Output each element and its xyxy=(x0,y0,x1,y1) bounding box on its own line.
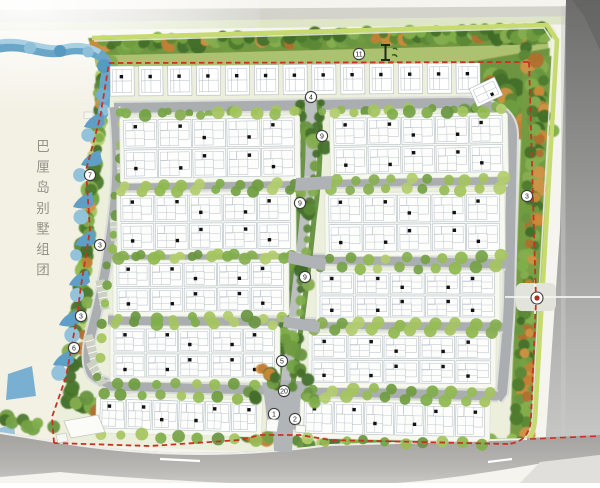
svg-text:3: 3 xyxy=(79,314,83,321)
svg-text:7: 7 xyxy=(88,173,92,180)
svg-text:3: 3 xyxy=(98,243,102,250)
svg-text:团: 团 xyxy=(36,263,50,278)
svg-text:巴: 巴 xyxy=(36,139,50,154)
svg-text:11: 11 xyxy=(355,52,362,59)
svg-text:岛: 岛 xyxy=(36,180,50,195)
svg-text:厘: 厘 xyxy=(36,160,50,175)
svg-text:20: 20 xyxy=(280,389,288,396)
svg-text:5: 5 xyxy=(280,359,284,366)
svg-text:9: 9 xyxy=(320,134,324,141)
svg-text:9: 9 xyxy=(298,201,302,208)
svg-text:9: 9 xyxy=(303,275,307,282)
svg-text:4: 4 xyxy=(309,95,313,102)
svg-text:6: 6 xyxy=(72,346,76,353)
svg-text:组: 组 xyxy=(36,242,50,257)
svg-text:3: 3 xyxy=(525,194,529,201)
svg-text:2: 2 xyxy=(293,417,297,424)
svg-text:别: 别 xyxy=(36,201,50,216)
svg-text:墅: 墅 xyxy=(36,221,50,236)
svg-text:1: 1 xyxy=(272,412,276,419)
